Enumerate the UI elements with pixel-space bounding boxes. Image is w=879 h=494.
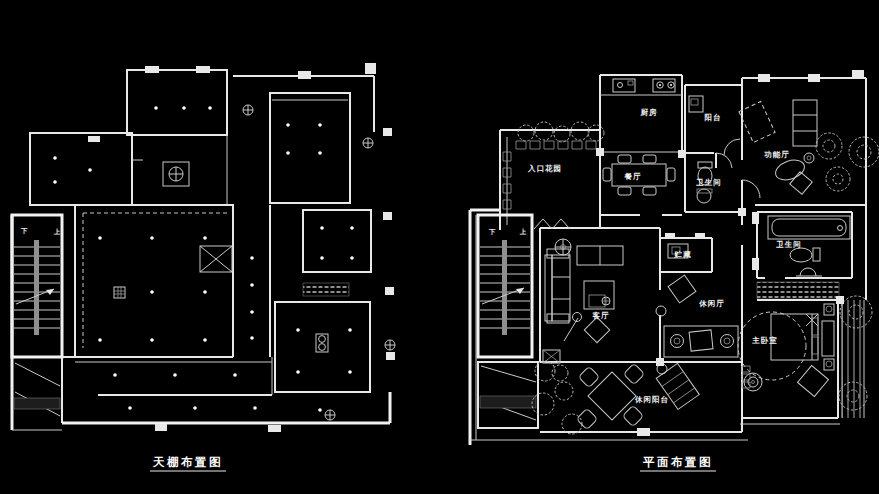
living-room-furniture: [543, 239, 623, 363]
ramp-rooms-left: [12, 363, 62, 430]
kitchen-counter: [600, 79, 682, 95]
room-label-storage: 贮藏: [675, 250, 692, 260]
room-label-master-bedroom: 主卧室: [752, 336, 778, 346]
room-label-balcony: 阳台: [705, 113, 722, 123]
room-label-leisure-hall: 休闲厅: [699, 299, 725, 309]
room-label-bathroom-north: 卫生间: [696, 178, 722, 188]
bathtub: [768, 216, 850, 239]
room-label-kitchen: 厨房: [641, 108, 658, 118]
cad-drawing-canvas: 下 上 下 上 厨房 阳台 入口花园 餐厅 卫生间 功能厅 贮藏 卫生间 客厅 …: [0, 0, 879, 494]
lounge-chair: [532, 361, 699, 415]
stair-label-up-ceiling: 上: [54, 228, 61, 237]
balcony-fittings: [689, 96, 740, 155]
square-light-symbol: [114, 287, 125, 298]
skylight-x-box: [200, 246, 232, 272]
stair-label-down-floor: 下: [489, 228, 496, 237]
room-label-dining-room: 餐厅: [625, 172, 642, 182]
room-label-entrance-garden: 入口花园: [528, 164, 562, 174]
wall-column-marks: [88, 63, 395, 432]
function-hall-furniture: [739, 100, 850, 198]
wall-column-marks-right: [596, 70, 864, 436]
stair-label-down-ceiling: 下: [21, 227, 28, 236]
tv-cabinet: [664, 326, 738, 357]
double-lamp-symbol: [316, 334, 328, 352]
stair-label-up-floor: 上: [520, 228, 527, 237]
bed: [738, 304, 834, 396]
ceiling-fixture-box: [163, 162, 189, 186]
floor-symbol: [656, 306, 666, 316]
room-label-living-room: 客厅: [593, 311, 610, 321]
annotation-hatch-strip: [303, 283, 349, 296]
floorplan-linework: [0, 0, 879, 494]
room-label-function-hall: 功能厅: [764, 150, 790, 160]
room-label-bathroom-master: 卫生间: [776, 240, 802, 250]
garden-plants: [503, 122, 604, 229]
closet-hatch: [757, 282, 839, 299]
ceiling-plan-caption: 天棚布置图: [150, 455, 226, 472]
ceiling-light-dots: [53, 106, 354, 412]
room-label-leisure-balcony: 休闲阳台: [635, 395, 669, 405]
floor-plan-caption: 平面布置图: [640, 455, 716, 472]
ramp-rooms-right: [478, 362, 582, 434]
ceiling-plan-drawing: [12, 63, 395, 432]
